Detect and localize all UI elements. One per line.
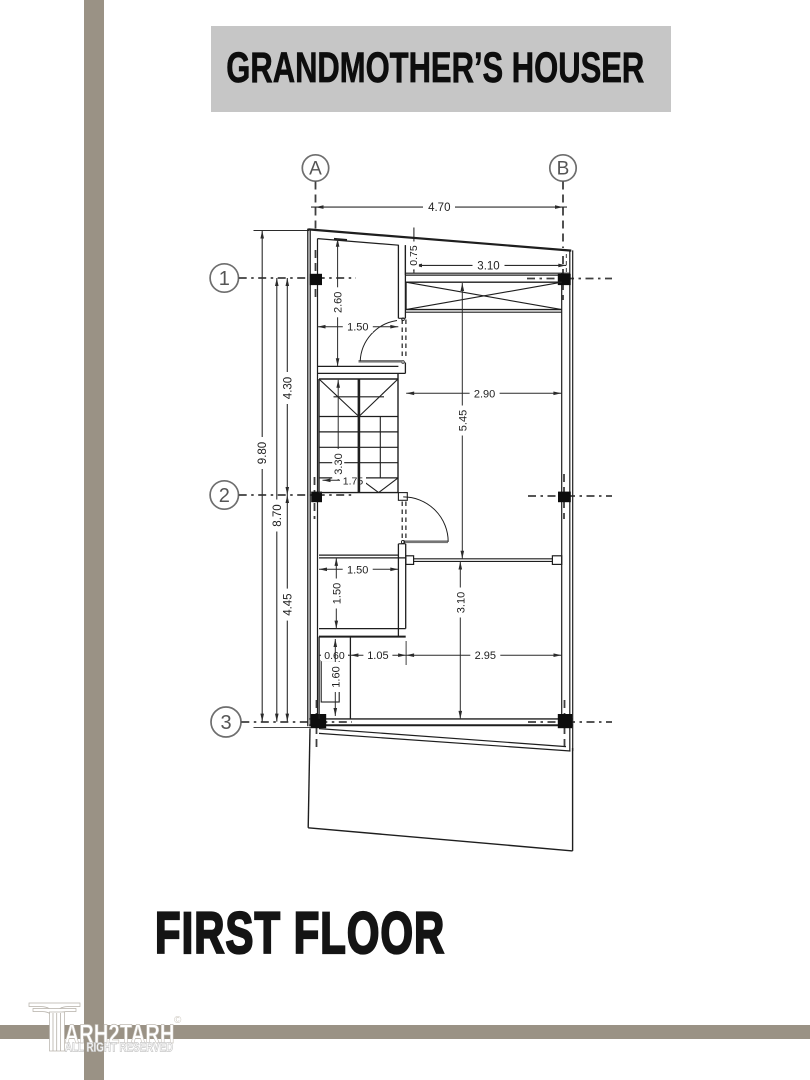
svg-text:2: 2 [219, 485, 230, 507]
svg-text:4.45: 4.45 [282, 593, 294, 615]
svg-text:3.10: 3.10 [455, 592, 467, 613]
svg-text:1.60: 1.60 [330, 666, 342, 687]
svg-text:2.60: 2.60 [333, 292, 345, 313]
svg-text:0.60: 0.60 [324, 650, 345, 662]
svg-text:1.50: 1.50 [347, 322, 368, 334]
svg-text:4.70: 4.70 [428, 202, 450, 214]
svg-text:3.10: 3.10 [477, 261, 499, 273]
svg-text:8.70: 8.70 [272, 504, 284, 526]
svg-text:©: © [174, 1015, 182, 1026]
svg-text:A: A [309, 159, 322, 180]
svg-text:1.50: 1.50 [331, 583, 343, 604]
svg-text:9.80: 9.80 [257, 442, 269, 464]
svg-text:ALL RIGHT RESERVED: ALL RIGHT RESERVED [65, 1040, 173, 1055]
svg-text:B: B [557, 159, 570, 180]
svg-text:3.30: 3.30 [333, 453, 345, 474]
svg-text:1.05: 1.05 [367, 650, 388, 662]
svg-text:0.75: 0.75 [408, 245, 420, 266]
svg-text:1: 1 [219, 268, 230, 290]
svg-text:1.75: 1.75 [343, 475, 364, 487]
svg-text:1.50: 1.50 [347, 564, 368, 576]
svg-text:2.90: 2.90 [474, 388, 495, 400]
svg-text:5.45: 5.45 [457, 410, 469, 431]
svg-text:3: 3 [220, 712, 231, 734]
svg-text:2.95: 2.95 [475, 650, 496, 662]
svg-text:4.30: 4.30 [282, 377, 294, 399]
